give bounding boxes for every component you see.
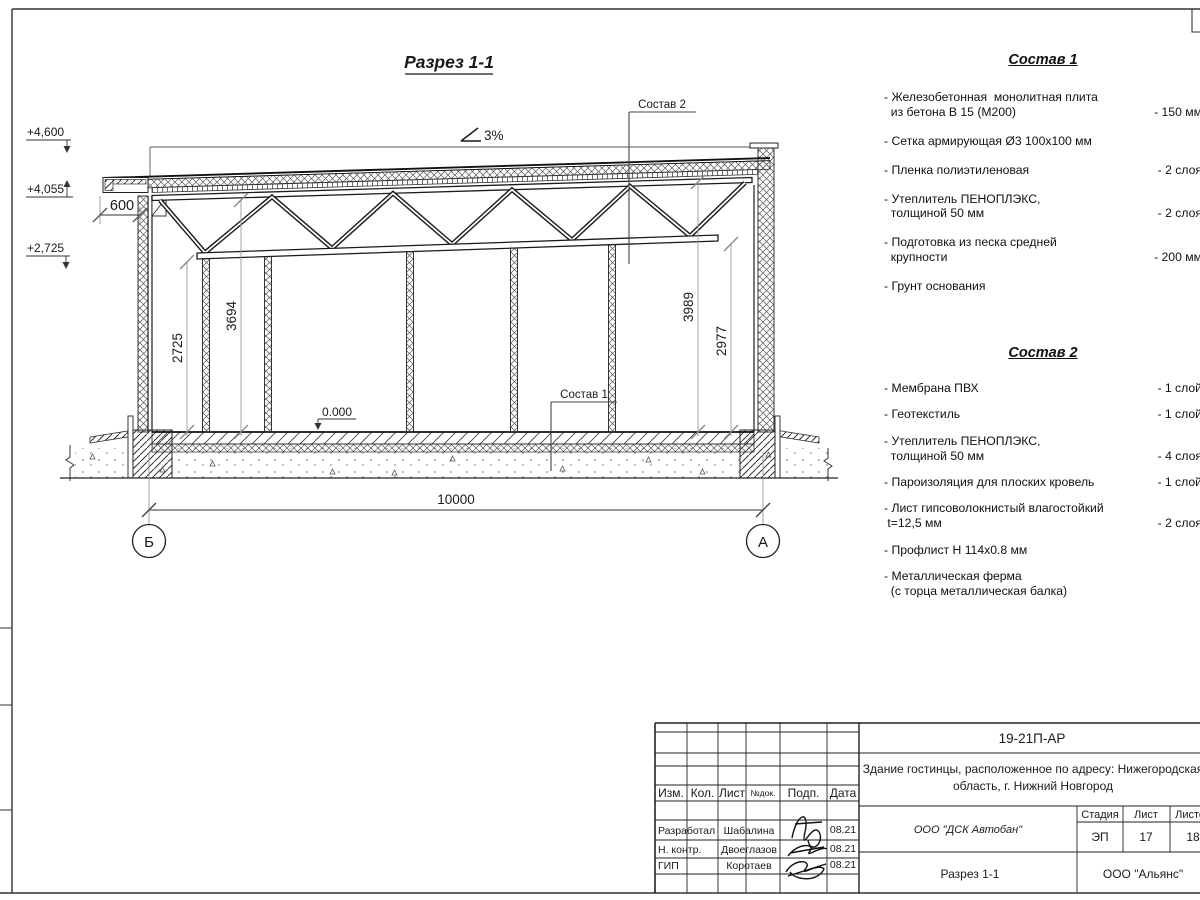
spec-item-text: - Лист гипсоволокнистый влагостойкий t=1…	[884, 501, 1138, 531]
callout-sostav1: Состав 1	[560, 389, 608, 401]
spec2-item-2: - Геотекстиль - 1 слой	[884, 407, 1200, 422]
col-list: Лист	[719, 786, 746, 800]
stage-label: Стадия	[1081, 809, 1119, 821]
dim-ticks	[180, 175, 738, 439]
org-name: ООО "Альянс"	[1103, 867, 1183, 881]
view-title: Разрез 1-1	[404, 52, 494, 74]
row3-date: 08.21	[830, 859, 856, 871]
spec2-item-1: - Мембрана ПВХ - 1 слой	[884, 381, 1200, 396]
overhang-dim-text: 600	[110, 198, 134, 214]
spec-item-text: - Пленка полиэтиленовая	[884, 163, 1138, 178]
row1-role: Разработал	[658, 825, 715, 837]
column	[511, 248, 518, 432]
row2-role: Н. контр.	[658, 844, 701, 856]
row2-name: Двоеглазов	[721, 844, 777, 856]
spec2-item-3: - Утеплитель ПЕНОПЛЭКС, толщиной 50 мм -…	[884, 434, 1200, 464]
spec2-item-6: - Профлист Н 114х0.8 мм	[884, 543, 1200, 558]
spec-item-text: - Подготовка из песка средней крупности	[884, 235, 1138, 265]
spec-item-text: - Геотекстиль	[884, 407, 1138, 422]
arrow-down-icon	[64, 146, 71, 153]
column	[407, 252, 414, 432]
slope-mark: 3%	[461, 128, 504, 143]
drawing-name: Разрез 1-1	[941, 867, 1000, 881]
spec-item-value: - 4 слоя	[1158, 449, 1200, 464]
right-apron	[775, 430, 819, 443]
sheets-label: Листов	[1175, 809, 1200, 821]
dim-3989: 3989	[681, 292, 696, 322]
column	[265, 257, 272, 432]
right-wall	[758, 147, 774, 432]
spec-item-text: - Железобетонная монолитная плита из бет…	[884, 90, 1138, 120]
dim-2725: 2725	[170, 333, 185, 363]
slope-angle-icon	[461, 128, 478, 141]
spec2-item-5: - Лист гипсоволокнистый влагостойкий t=1…	[884, 501, 1200, 531]
drawing-sheet: Б А 10000 600 2725 3694 3989 2977 0.000 …	[0, 0, 1200, 900]
project-line1: Здание гостинцы, расположенное по адресу…	[863, 762, 1200, 776]
column	[609, 245, 616, 432]
spec-list-2: Состав 2 - Мембрана ПВХ - 1 слой - Геоте…	[884, 345, 1200, 599]
spec2-title: Состав 2	[884, 345, 1200, 361]
callouts: Состав 2 Состав 1	[551, 99, 696, 471]
left-apron	[90, 430, 134, 443]
spec1-item-2: - Сетка армирующая Ø3 100х100 мм	[884, 134, 1200, 149]
company: ООО "ДСК Автобан"	[914, 824, 1023, 836]
spec-item-text: - Сетка армирующая Ø3 100х100 мм	[884, 134, 1138, 149]
sheets-value: 18	[1186, 830, 1200, 844]
col-kol: Кол.	[691, 786, 715, 800]
spec-item-text: - Пароизоляция для плоских кровель	[884, 475, 1138, 490]
sheet-value: 17	[1139, 830, 1153, 844]
spec-item-value: - 150 мм	[1154, 105, 1200, 120]
signature-1	[792, 817, 822, 847]
dim-3694: 3694	[224, 300, 239, 331]
sheet-label: Лист	[1134, 809, 1158, 821]
spec-item-text: - Утеплитель ПЕНОПЛЭКС, толщиной 50 мм	[884, 434, 1138, 464]
spec-item-value: - 2 слоя	[1158, 163, 1200, 178]
floor-layers	[60, 416, 838, 481]
span-dim-text: 10000	[437, 492, 475, 507]
col-data: Дата	[830, 786, 857, 800]
elev-4600: +4,600	[27, 125, 64, 139]
column	[203, 259, 210, 432]
signatures	[786, 817, 827, 879]
dim-2977: 2977	[714, 326, 729, 356]
col-ndok: №док.	[751, 788, 776, 798]
title-block: Изм. Кол. Лист №док. Подп. Дата Разработ…	[655, 723, 1200, 893]
spec-item-value: - 200 мм	[1154, 250, 1200, 265]
spec1-item-6: - Грунт основания	[884, 279, 1200, 294]
slope-label: 3%	[484, 128, 504, 143]
elev-4055: +4,055	[27, 182, 64, 196]
right-wall-cap	[750, 143, 778, 148]
callout-sostav2: Состав 2	[638, 99, 686, 111]
col-izm: Изм.	[658, 786, 684, 800]
spec1-title: Состав 1	[884, 52, 1200, 68]
elev-2725: +2,725	[27, 241, 64, 255]
row3-role: ГИП	[658, 860, 679, 872]
spec-item-value: - 1 слой	[1157, 475, 1200, 490]
row2-date: 08.21	[830, 843, 856, 855]
stage-value: ЭП	[1091, 830, 1108, 844]
spec-item-text: - Профлист Н 114х0.8 мм	[884, 543, 1138, 558]
axis-left-label: Б	[144, 534, 154, 551]
spec-item-text: - Грунт основания	[884, 279, 1138, 294]
floor-slab	[152, 432, 754, 444]
spec1-item-4: - Утеплитель ПЕНОПЛЭКС, толщиной 50 мм -…	[884, 192, 1200, 222]
elevation-marks: +4,600 +4,055 +2,725	[26, 125, 73, 269]
spec2-item-4: - Пароизоляция для плоских кровель - 1 с…	[884, 475, 1200, 490]
project-line2: область, г. Нижний Новгород	[953, 779, 1113, 793]
spec-list-1: Состав 1 - Железобетонная монолитная пли…	[884, 52, 1200, 294]
arrow-up-icon	[64, 180, 71, 187]
axis-right-label: А	[758, 534, 768, 551]
arrow-down-icon	[63, 262, 70, 269]
row3-name: Коротаев	[726, 860, 772, 872]
break-mark-left	[66, 445, 74, 481]
spec1-item-3: - Пленка полиэтиленовая - 2 слоя	[884, 163, 1200, 178]
signature-3	[786, 862, 826, 879]
columns	[203, 245, 616, 432]
spec1-item-5: - Подготовка из песка средней крупности …	[884, 235, 1200, 265]
spec-item-value: - 1 слой	[1157, 407, 1200, 422]
row1-name: Шабалина	[724, 825, 775, 837]
left-wall	[138, 196, 148, 432]
spec2-item-7: - Металлическая ферма (с торца металличе…	[884, 569, 1200, 599]
spec-item-text: - Утеплитель ПЕНОПЛЭКС, толщиной 50 мм	[884, 192, 1138, 222]
spec-item-value: - 2 слоя	[1158, 516, 1200, 531]
corner-code-box	[1192, 9, 1200, 32]
col-podp: Подп.	[788, 786, 820, 800]
level-zero-text: 0.000	[322, 405, 352, 419]
doc-number: 19-21П-АР	[999, 731, 1066, 746]
page-title: Разрез 1-1	[404, 52, 494, 72]
floor-insulation	[152, 444, 754, 452]
spec-item-text: - Мембрана ПВХ	[884, 381, 1138, 396]
row1-date: 08.21	[830, 824, 856, 836]
spec-item-value: - 2 слоя	[1158, 206, 1200, 221]
spec-item-text: - Металлическая ферма (с торца металличе…	[884, 569, 1138, 599]
signature-2	[788, 846, 827, 856]
spec1-item-1: - Железобетонная монолитная плита из бет…	[884, 90, 1200, 120]
spec-item-value: - 1 слой	[1157, 381, 1200, 396]
